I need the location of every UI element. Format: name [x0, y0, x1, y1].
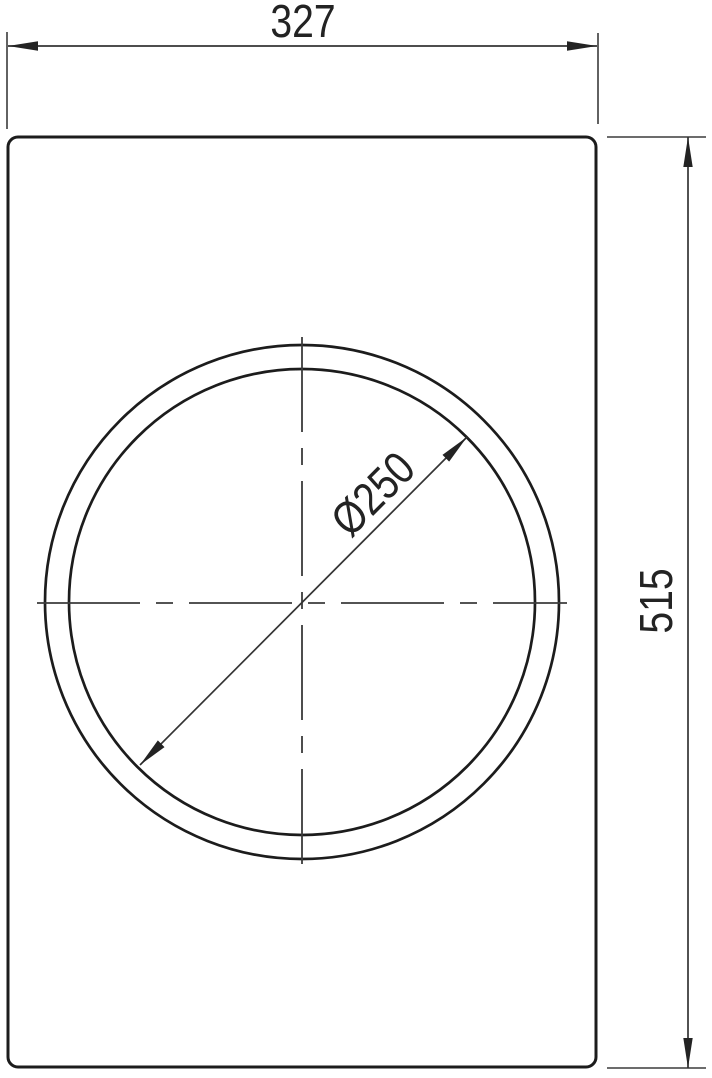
drawing-canvas: 327 515 Ø250 [0, 0, 712, 1078]
dimension-drawing: 327 515 Ø250 [0, 0, 712, 1078]
height-dimension-label: 515 [631, 568, 683, 633]
diameter-dimension-label: Ø250 [321, 442, 425, 546]
width-dimension-label: 327 [270, 0, 335, 48]
